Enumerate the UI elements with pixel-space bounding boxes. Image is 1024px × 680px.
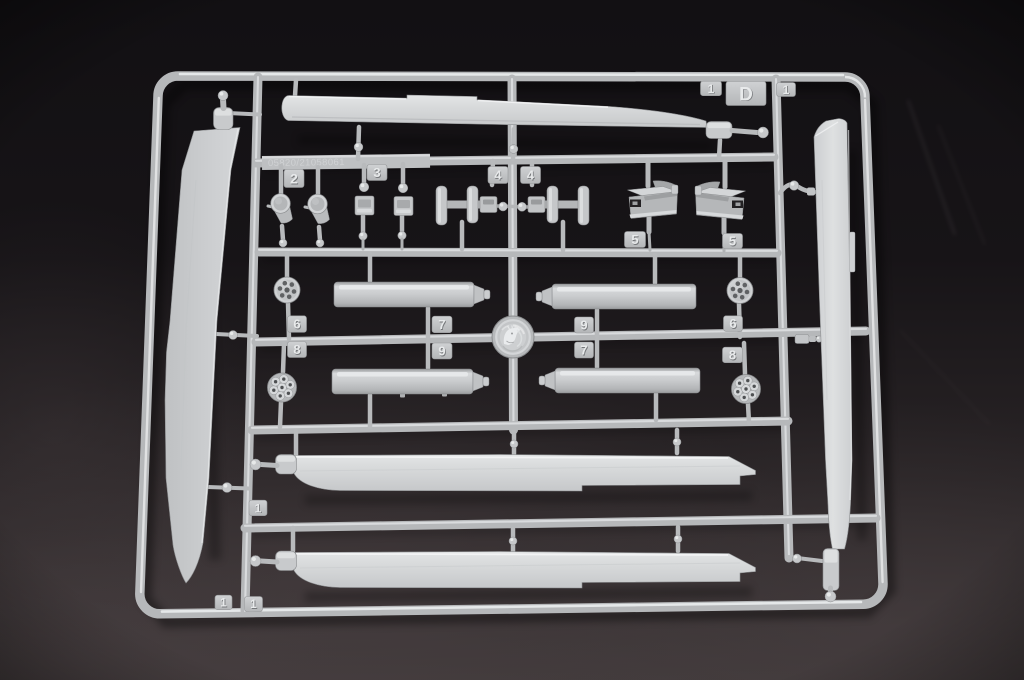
svg-text:9: 9: [438, 344, 445, 359]
svg-text:9: 9: [580, 318, 587, 333]
svg-text:7: 7: [580, 343, 587, 358]
svg-text:6: 6: [293, 317, 300, 332]
svg-text:6: 6: [729, 316, 736, 331]
svg-text:1: 1: [708, 82, 715, 96]
svg-text:1: 1: [783, 83, 790, 97]
svg-text:4: 4: [494, 168, 502, 183]
svg-text:2: 2: [290, 171, 298, 187]
svg-text:5: 5: [729, 234, 736, 249]
svg-text:8: 8: [293, 342, 300, 357]
svg-text:5: 5: [631, 232, 638, 247]
svg-text:8: 8: [729, 348, 736, 363]
svg-text:4: 4: [527, 168, 535, 183]
svg-text:1: 1: [220, 598, 227, 610]
svg-text:3: 3: [373, 165, 380, 180]
svg-text:D: D: [739, 84, 753, 105]
svg-text:1: 1: [250, 599, 257, 611]
svg-text:1: 1: [255, 501, 262, 515]
svg-text:7: 7: [438, 317, 445, 332]
